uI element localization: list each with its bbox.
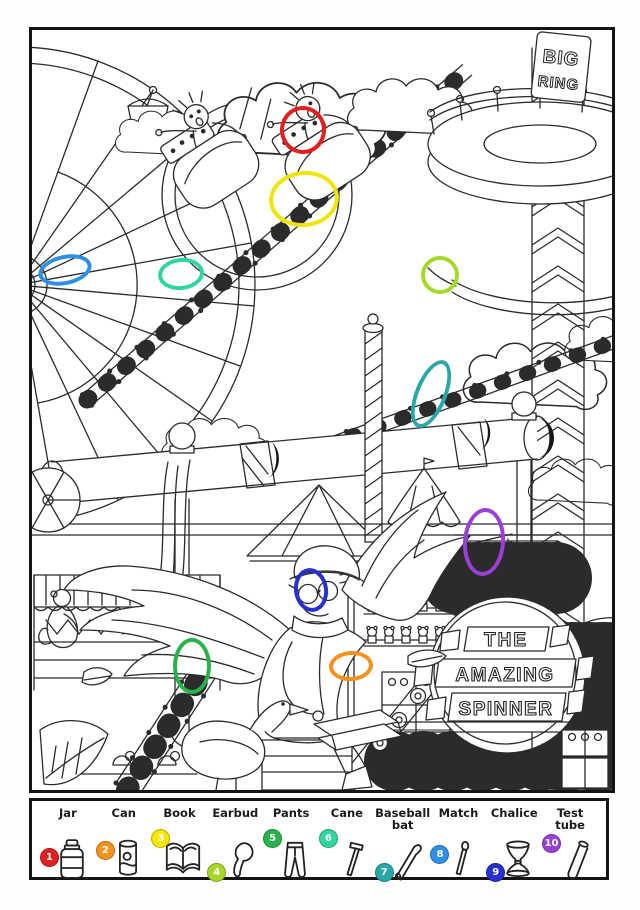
legend-item-match: Match8 [431,804,487,875]
horizontal-beam [32,524,612,535]
legend-number-badge: 5 [263,829,282,848]
legend-number-badge: 10 [542,834,561,853]
legend-item-cane: Cane6 [319,804,375,875]
legend-item-label: Chalice [486,804,542,836]
legend-item-label: Baseballbat [375,804,431,836]
pants-icon [277,836,313,882]
legend-item-pants: Pants5 [263,804,319,875]
baseball-bat-icon [389,836,425,882]
legend-item-book: Book3 [152,804,208,875]
legend-item-baseball: Baseballbat7 [375,804,431,875]
jar-icon [54,836,90,882]
legend-number-badge: 7 [375,863,394,882]
corner-crates [562,730,608,788]
can-icon [110,836,146,882]
spinner-sign-text-2: AMAZING [455,665,554,686]
tower-sign-text-1: BIG [542,46,581,71]
legend-item-label: Can [96,804,152,836]
legend-box: Jar1Can2Book3Earbud4Pants5Cane6Baseballb… [29,798,609,880]
legend-item-label: Match [431,804,487,836]
spinner-sign-text-3: SPINNER [459,699,554,720]
legend-item-label: Jar [40,804,96,836]
chalice-icon [500,836,536,882]
legend-item-label: Testtube [542,804,598,836]
book-icon [165,836,201,882]
cane-icon [333,836,369,882]
tower-sign: BIG RING [531,31,592,102]
scene-illustration: BIG RING [32,30,612,790]
legend-number-badge: 2 [96,841,115,860]
legend-item-can: Can2 [96,804,152,875]
legend-item-chalice: Chalice9 [486,804,542,875]
earbud-icon [221,836,257,882]
test-tube-icon [556,836,592,882]
legend-number-badge: 1 [40,848,59,867]
legend-item-earbud: Earbud4 [207,804,263,875]
spinner-sign-text-1: THE [484,630,528,651]
illustration-panel: BIG RING [29,27,615,793]
legend-item-test: Testtube10 [542,804,598,875]
legend-number-badge: 6 [319,829,338,848]
puzzle-page: BIG RING [0,0,640,910]
legend-item-jar: Jar1 [40,804,96,875]
match-icon [444,836,480,882]
legend-item-label: Earbud [207,804,263,836]
